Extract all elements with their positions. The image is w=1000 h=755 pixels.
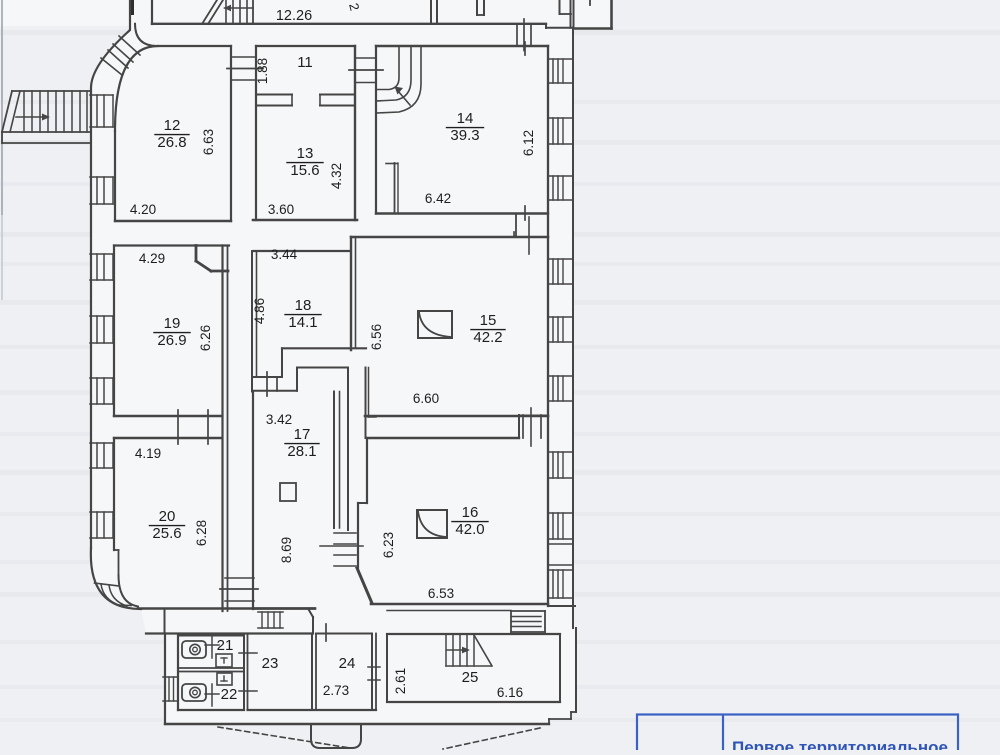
- svg-text:24: 24: [339, 655, 356, 672]
- svg-text:16: 16: [462, 504, 479, 521]
- svg-text:4.32: 4.32: [329, 163, 344, 189]
- svg-text:6.23: 6.23: [381, 532, 396, 558]
- svg-text:4.86: 4.86: [252, 298, 267, 324]
- svg-text:2.61: 2.61: [393, 668, 408, 694]
- svg-text:15.6: 15.6: [290, 162, 319, 179]
- svg-text:13: 13: [297, 145, 314, 162]
- svg-text:6.26: 6.26: [198, 325, 213, 351]
- svg-text:12.26: 12.26: [276, 8, 312, 24]
- svg-text:6.42: 6.42: [425, 191, 451, 206]
- svg-text:3.60: 3.60: [268, 202, 294, 217]
- svg-text:6.56: 6.56: [369, 324, 384, 350]
- svg-text:2.73: 2.73: [323, 683, 349, 698]
- svg-text:6.12: 6.12: [521, 130, 536, 156]
- svg-text:4.29: 4.29: [139, 251, 165, 266]
- svg-text:28.1: 28.1: [287, 443, 316, 460]
- svg-text:26.8: 26.8: [157, 134, 186, 151]
- svg-text:Первое территориальное: Первое территориальное: [732, 738, 948, 750]
- svg-text:17: 17: [294, 426, 311, 443]
- svg-text:39.3: 39.3: [450, 127, 479, 144]
- svg-text:6.53: 6.53: [428, 586, 454, 601]
- svg-text:25.6: 25.6: [152, 525, 181, 542]
- svg-text:18: 18: [295, 297, 312, 314]
- svg-text:8.69: 8.69: [279, 537, 294, 563]
- svg-text:22: 22: [221, 686, 238, 703]
- svg-text:4.19: 4.19: [135, 446, 161, 461]
- svg-text:1.88: 1.88: [255, 58, 270, 84]
- svg-text:14.1: 14.1: [288, 314, 317, 331]
- svg-text:6.16: 6.16: [497, 685, 523, 700]
- svg-text:21: 21: [217, 637, 234, 654]
- svg-text:6.60: 6.60: [413, 391, 439, 406]
- svg-text:12: 12: [164, 117, 181, 134]
- svg-text:19: 19: [164, 315, 181, 332]
- svg-text:20: 20: [159, 508, 176, 525]
- svg-text:11: 11: [297, 54, 313, 71]
- svg-text:3.42: 3.42: [266, 412, 292, 427]
- svg-text:6.28: 6.28: [194, 520, 209, 546]
- svg-text:25: 25: [462, 669, 479, 686]
- svg-text:6.63: 6.63: [201, 129, 216, 155]
- svg-text:42.2: 42.2: [473, 329, 502, 346]
- svg-text:4.20: 4.20: [130, 202, 156, 217]
- svg-text:14: 14: [457, 110, 474, 127]
- svg-text:15: 15: [480, 312, 497, 329]
- svg-text:42.0: 42.0: [455, 521, 484, 538]
- svg-text:23: 23: [262, 655, 279, 672]
- svg-text:3.44: 3.44: [271, 247, 298, 262]
- svg-text:26.9: 26.9: [157, 332, 186, 349]
